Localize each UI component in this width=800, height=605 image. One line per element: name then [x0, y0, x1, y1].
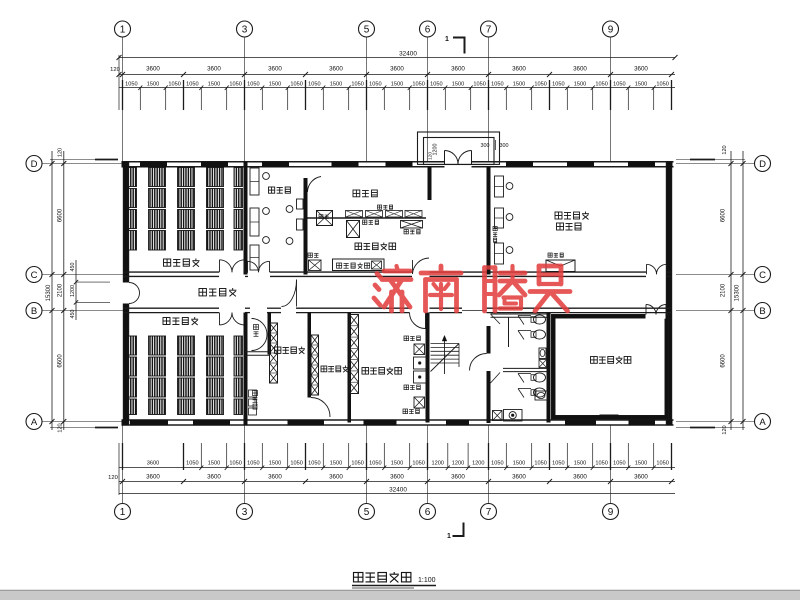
svg-text:3600: 3600	[451, 66, 465, 73]
svg-text:6: 6	[425, 507, 431, 518]
svg-text:3600: 3600	[268, 66, 282, 73]
svg-text:D: D	[31, 159, 38, 170]
svg-text:3600: 3600	[146, 474, 160, 481]
svg-text:9: 9	[608, 507, 614, 518]
svg-text:6600: 6600	[58, 354, 64, 368]
svg-text:1050: 1050	[491, 461, 503, 467]
svg-text:1050: 1050	[229, 461, 241, 467]
svg-text:1050: 1050	[351, 81, 363, 87]
svg-text:7: 7	[486, 25, 492, 36]
svg-text:120: 120	[108, 475, 118, 481]
svg-text:1050: 1050	[125, 81, 137, 87]
svg-text:1: 1	[120, 507, 126, 518]
svg-text:1: 1	[120, 25, 126, 36]
svg-text:7: 7	[486, 507, 492, 518]
svg-text:1050: 1050	[369, 81, 381, 87]
svg-text:300: 300	[500, 143, 509, 149]
svg-text:1050: 1050	[308, 81, 320, 87]
svg-text:3600: 3600	[268, 474, 282, 481]
svg-text:1200: 1200	[472, 461, 484, 467]
svg-text:3600: 3600	[512, 474, 526, 481]
svg-text:3600: 3600	[207, 66, 221, 73]
svg-text:1050: 1050	[229, 81, 241, 87]
svg-text:1500: 1500	[208, 81, 220, 87]
svg-text:1050: 1050	[351, 461, 363, 467]
svg-text:120: 120	[58, 148, 64, 157]
svg-text:6600: 6600	[58, 208, 64, 222]
svg-text:1500: 1500	[574, 461, 586, 467]
svg-text:1050: 1050	[534, 461, 546, 467]
svg-text:1050: 1050	[308, 461, 320, 467]
svg-text:1050: 1050	[369, 461, 381, 467]
svg-text:450: 450	[70, 263, 76, 272]
svg-text:1050: 1050	[247, 461, 259, 467]
svg-text:6600: 6600	[721, 354, 727, 368]
svg-text:3600: 3600	[207, 474, 221, 481]
svg-text:32400: 32400	[389, 487, 407, 494]
svg-text:1500: 1500	[513, 461, 525, 467]
svg-text:1:100: 1:100	[418, 577, 436, 584]
svg-text:2100: 2100	[721, 283, 727, 297]
svg-text:1050: 1050	[430, 81, 442, 87]
svg-text:3600: 3600	[390, 66, 404, 73]
svg-text:1050: 1050	[186, 461, 198, 467]
svg-text:3600: 3600	[329, 474, 343, 481]
svg-text:1050: 1050	[290, 461, 302, 467]
svg-text:C: C	[759, 270, 766, 281]
svg-text:1050: 1050	[656, 81, 668, 87]
svg-text:B: B	[759, 306, 765, 317]
svg-text:1500: 1500	[513, 81, 525, 87]
svg-text:120: 120	[110, 67, 120, 73]
svg-text:1500: 1500	[635, 81, 647, 87]
svg-text:1200: 1200	[70, 285, 76, 297]
svg-text:2100: 2100	[58, 283, 64, 297]
svg-text:3600: 3600	[451, 474, 465, 481]
svg-text:1050: 1050	[247, 81, 259, 87]
svg-text:5: 5	[364, 507, 370, 518]
svg-text:1: 1	[445, 36, 449, 43]
svg-text:1500: 1500	[452, 81, 464, 87]
svg-text:120: 120	[722, 425, 728, 434]
svg-text:1050: 1050	[595, 461, 607, 467]
svg-text:120: 120	[722, 145, 728, 154]
svg-text:3600: 3600	[573, 66, 587, 73]
svg-text:1500: 1500	[330, 461, 342, 467]
svg-text:3600: 3600	[634, 474, 648, 481]
svg-text:1500: 1500	[330, 81, 342, 87]
svg-text:1050: 1050	[595, 81, 607, 87]
svg-text:1500: 1500	[391, 81, 403, 87]
svg-text:450: 450	[70, 310, 76, 319]
svg-text:3600: 3600	[512, 66, 526, 73]
svg-text:3600: 3600	[573, 474, 587, 481]
svg-text:300: 300	[481, 143, 490, 149]
svg-text:A: A	[759, 417, 766, 428]
svg-text:1200: 1200	[431, 461, 443, 467]
svg-text:C: C	[31, 270, 38, 281]
svg-text:A: A	[31, 417, 38, 428]
svg-text:9: 9	[608, 25, 614, 36]
svg-text:1050: 1050	[491, 81, 503, 87]
svg-text:1500: 1500	[635, 461, 647, 467]
svg-text:1500: 1500	[391, 461, 403, 467]
svg-text:3: 3	[242, 25, 248, 36]
svg-text:1050: 1050	[412, 461, 424, 467]
svg-text:1200: 1200	[452, 461, 464, 467]
svg-text:6600: 6600	[721, 208, 727, 222]
svg-text:1050: 1050	[473, 81, 485, 87]
svg-text:1050: 1050	[168, 81, 180, 87]
svg-text:15300: 15300	[735, 284, 741, 301]
svg-text:3: 3	[242, 507, 248, 518]
svg-text:3600: 3600	[147, 461, 159, 467]
svg-text:1050: 1050	[186, 81, 198, 87]
svg-text:1050: 1050	[552, 81, 564, 87]
svg-text:15300: 15300	[46, 284, 52, 301]
svg-text:1050: 1050	[613, 461, 625, 467]
svg-text:1050: 1050	[412, 81, 424, 87]
svg-text:1050: 1050	[613, 81, 625, 87]
svg-text:B: B	[31, 306, 37, 317]
svg-text:1500: 1500	[269, 461, 281, 467]
svg-text:1050: 1050	[552, 461, 564, 467]
svg-text:3600: 3600	[390, 474, 404, 481]
svg-text:1050: 1050	[290, 81, 302, 87]
svg-text:1500: 1500	[574, 81, 586, 87]
svg-text:1500: 1500	[147, 81, 159, 87]
svg-text:1: 1	[447, 533, 451, 540]
svg-text:32400: 32400	[399, 51, 417, 58]
svg-text:3600: 3600	[634, 66, 648, 73]
svg-text:5: 5	[364, 25, 370, 36]
svg-text:1500: 1500	[269, 81, 281, 87]
svg-text:1500: 1500	[208, 461, 220, 467]
svg-text:D: D	[759, 159, 766, 170]
svg-text:120: 120	[58, 423, 64, 432]
svg-text:3600: 3600	[146, 66, 160, 73]
svg-text:1050: 1050	[656, 461, 668, 467]
svg-text:3600: 3600	[329, 66, 343, 73]
svg-text:1050: 1050	[534, 81, 546, 87]
svg-text:6: 6	[425, 25, 431, 36]
svg-text:120: 120	[428, 152, 434, 160]
